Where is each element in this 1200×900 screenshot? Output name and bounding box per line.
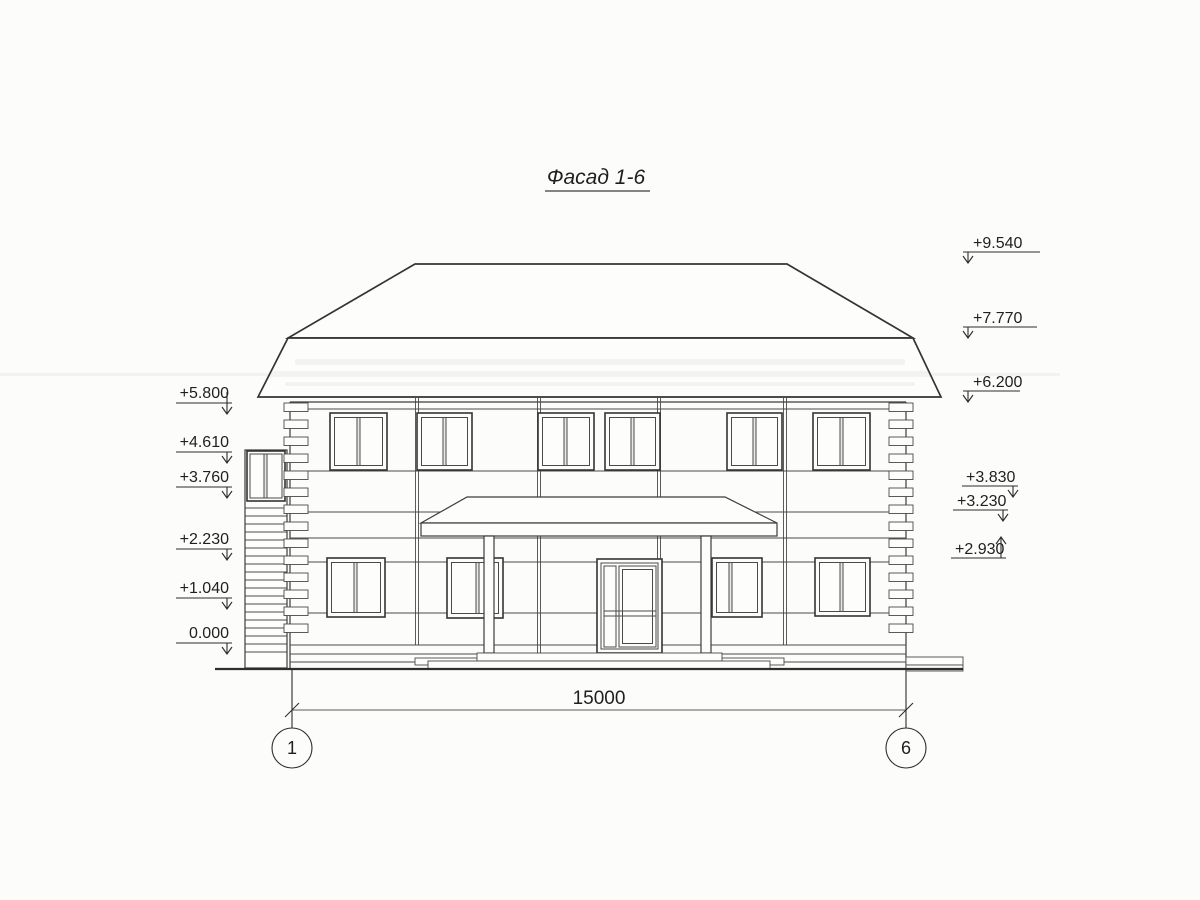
- roof-shading-streak: [270, 371, 930, 377]
- facade-drawing-sheet: Фасад 1-6: [0, 0, 1200, 900]
- drawing-title: Фасад 1-6: [545, 166, 650, 191]
- window-lower-3: [712, 558, 762, 617]
- entrance-door: [597, 559, 662, 653]
- left-annex: [245, 450, 287, 668]
- step-bottom: [428, 661, 770, 669]
- title-text: Фасад 1-6: [547, 166, 646, 189]
- step-top: [477, 653, 722, 661]
- canopy-fascia: [421, 523, 777, 536]
- annex-window: [247, 451, 285, 501]
- axis-label: 1: [287, 738, 297, 758]
- elevation-value: +2.230: [180, 531, 229, 548]
- elevation-value: +7.770: [973, 310, 1022, 327]
- elevation-value: +3.230: [957, 493, 1006, 510]
- elevation-value: +3.760: [180, 469, 229, 486]
- elevation-value: +5.800: [180, 385, 229, 402]
- window-lower-4: [815, 558, 870, 616]
- canopy-column-left: [484, 536, 494, 653]
- window-upper-3: [538, 413, 594, 470]
- window-upper-2: [417, 413, 472, 470]
- elevation-value: +4.610: [180, 434, 229, 451]
- window-upper-1: [330, 413, 387, 470]
- canopy-top-surface: [421, 497, 777, 523]
- elevation-value: +2.930: [955, 541, 1004, 558]
- window-lower-1: [327, 558, 385, 617]
- axis-label: 6: [901, 738, 911, 758]
- elevation-value: +6.200: [973, 374, 1022, 391]
- window-upper-5: [727, 413, 782, 470]
- canopy-column-right: [701, 536, 711, 653]
- elevation-value: 0.000: [189, 625, 229, 642]
- roof-shading-streak: [295, 359, 905, 365]
- elevation-value: +3.830: [966, 469, 1015, 486]
- window-lower-2: [447, 558, 503, 618]
- roof-eaves: [258, 338, 941, 397]
- window-upper-6: [813, 413, 870, 470]
- dimension-value: 15000: [573, 688, 626, 709]
- elevation-value: +1.040: [180, 580, 229, 597]
- elevation-mark-right-5: +2.930: [951, 537, 1006, 558]
- window-upper-4: [605, 413, 660, 470]
- elevation-value: +9.540: [973, 235, 1022, 252]
- roof-shading-streak: [285, 382, 915, 386]
